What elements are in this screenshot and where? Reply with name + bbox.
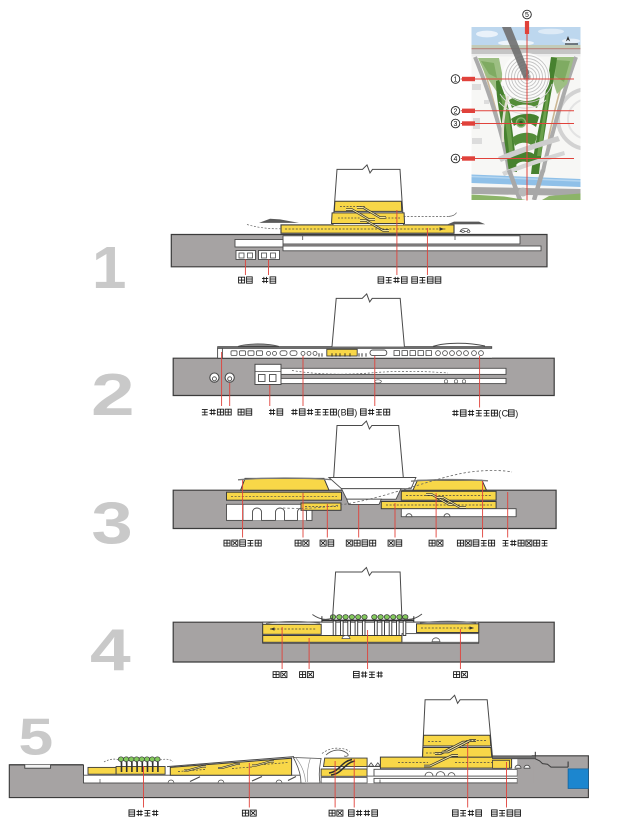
svg-text:B: B	[341, 407, 347, 417]
svg-text:5: 5	[19, 708, 54, 766]
svg-text:3: 3	[454, 121, 458, 128]
svg-text:): )	[515, 408, 518, 418]
svg-text:4: 4	[90, 618, 131, 684]
svg-text:2: 2	[91, 361, 135, 427]
svg-text:C: C	[502, 408, 509, 418]
svg-text:): )	[354, 407, 357, 417]
svg-text:2: 2	[454, 108, 458, 115]
svg-text:1: 1	[92, 234, 126, 300]
svg-text:3: 3	[91, 491, 132, 557]
svg-text:1: 1	[454, 77, 458, 84]
svg-text:4: 4	[454, 156, 458, 163]
svg-text:5: 5	[525, 12, 529, 19]
